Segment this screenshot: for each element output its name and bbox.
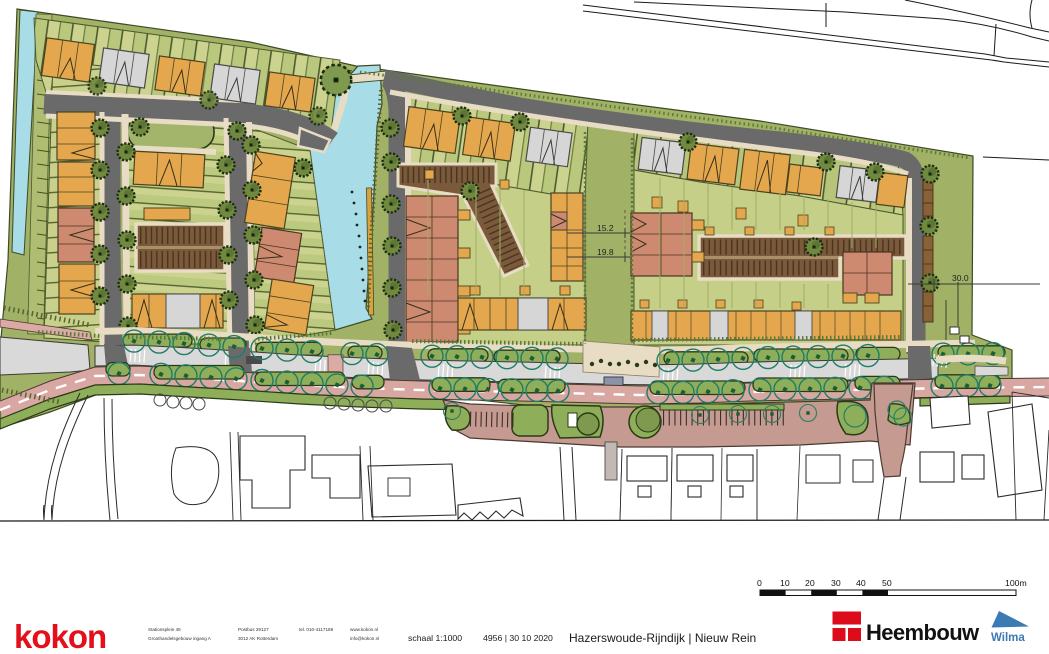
svg-text:Stationsplein 45: Stationsplein 45 — [148, 627, 181, 632]
svg-text:3012 AK Rotterdam: 3012 AK Rotterdam — [238, 636, 278, 641]
svg-text:schaal 1:1000: schaal 1:1000 — [408, 633, 462, 643]
svg-text:info@kokon.nl: info@kokon.nl — [350, 636, 379, 641]
svg-text:30.0: 30.0 — [952, 273, 969, 283]
svg-text:30: 30 — [831, 578, 841, 588]
svg-text:40: 40 — [856, 578, 866, 588]
svg-text:Hazerswoude-Rijndijk | Nieuw R: Hazerswoude-Rijndijk | Nieuw Rein — [569, 631, 756, 645]
svg-text:15.2: 15.2 — [597, 223, 614, 233]
svg-text:10: 10 — [780, 578, 790, 588]
svg-text:20: 20 — [805, 578, 815, 588]
svg-text:0: 0 — [757, 578, 762, 588]
svg-text:www.kokon.nl: www.kokon.nl — [350, 627, 378, 632]
svg-text:50: 50 — [882, 578, 892, 588]
svg-text:Postbus 29127: Postbus 29127 — [238, 627, 269, 632]
svg-text:Groothandelsgebouw ingang A: Groothandelsgebouw ingang A — [148, 636, 212, 641]
svg-text:tel. 010-4117188: tel. 010-4117188 — [299, 627, 334, 632]
svg-text:100m: 100m — [1005, 578, 1027, 588]
svg-text:Heembouw: Heembouw — [866, 620, 980, 645]
svg-text:4956 | 30 10 2020: 4956 | 30 10 2020 — [483, 633, 553, 643]
svg-text:kokon: kokon — [14, 618, 106, 654]
svg-text:Wilma: Wilma — [991, 632, 1025, 644]
svg-text:19.8: 19.8 — [597, 247, 614, 257]
